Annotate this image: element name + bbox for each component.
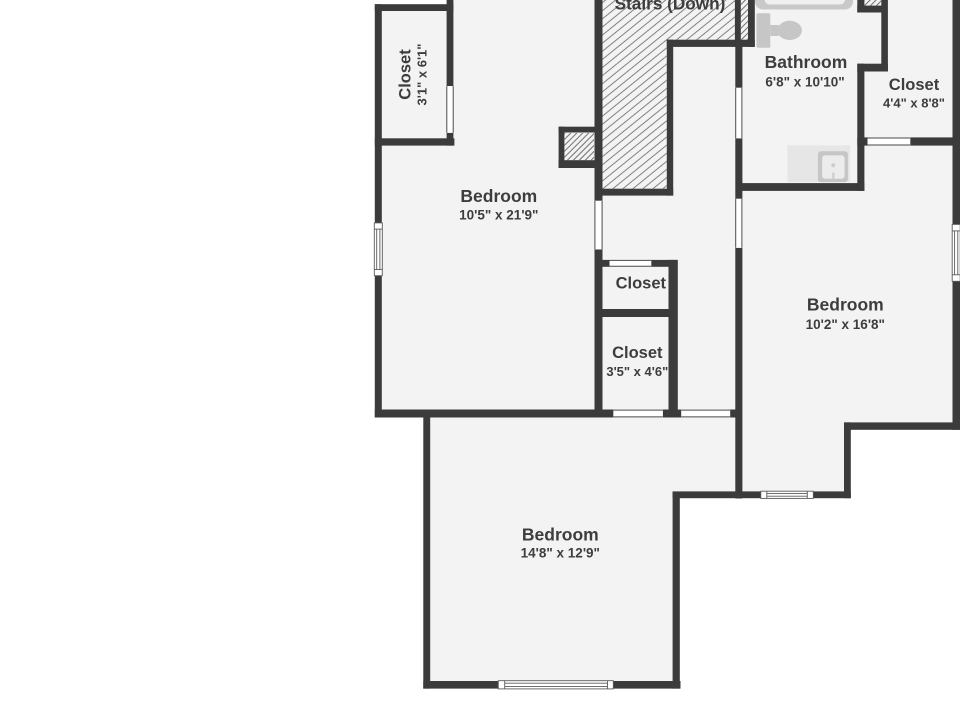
svg-text:10'2" x 16'8": 10'2" x 16'8" [806, 317, 885, 332]
svg-text:10'5" x 21'9": 10'5" x 21'9" [459, 208, 538, 223]
svg-text:3'5" x 4'6": 3'5" x 4'6" [606, 364, 668, 379]
svg-text:3'1" x 6'1": 3'1" x 6'1" [415, 44, 430, 106]
svg-text:6'8" x 10'10": 6'8" x 10'10" [765, 75, 844, 90]
svg-text:Bedroom: Bedroom [522, 524, 599, 544]
svg-text:Closet: Closet [616, 275, 667, 293]
svg-text:4'4" x 8'8": 4'4" x 8'8" [883, 95, 945, 110]
svg-text:Stairs (Down): Stairs (Down) [615, 0, 726, 14]
svg-text:Bedroom: Bedroom [460, 186, 537, 206]
svg-text:Closet: Closet [612, 344, 663, 362]
svg-text:Closet: Closet [397, 49, 415, 100]
svg-text:Closet: Closet [889, 76, 940, 94]
svg-text:Bedroom: Bedroom [807, 294, 884, 314]
svg-text:14'8" x 12'9": 14'8" x 12'9" [521, 546, 600, 561]
svg-text:Bathroom: Bathroom [765, 52, 848, 72]
